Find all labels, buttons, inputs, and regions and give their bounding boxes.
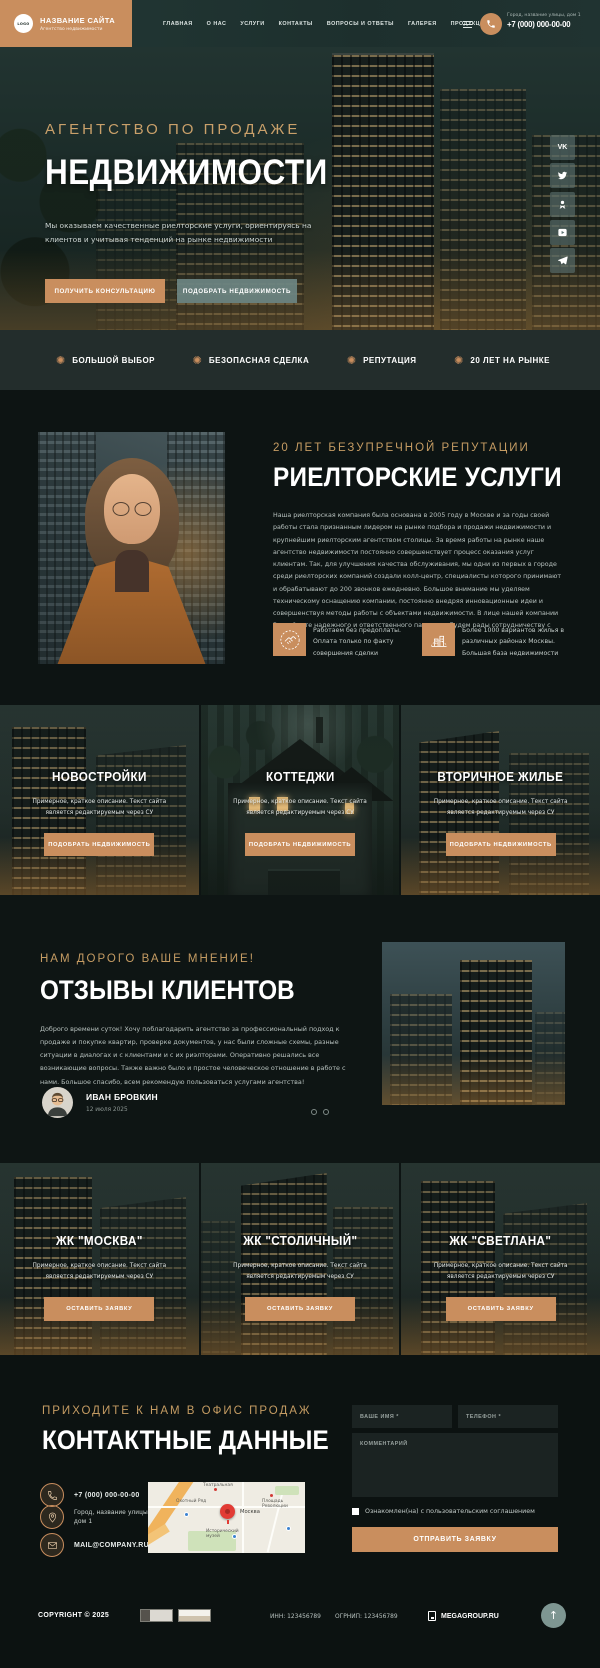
find-property-button[interactable]: ПОДОБРАТЬ НЕДВИЖИМОСТЬ <box>446 833 556 856</box>
find-property-button[interactable]: ПОДОБРАТЬ НЕДВИЖИМОСТЬ <box>44 833 154 856</box>
header: LOGO НАЗВАНИЕ САЙТА Агентство недвижимос… <box>0 0 600 47</box>
logo[interactable]: LOGO НАЗВАНИЕ САЙТА Агентство недвижимос… <box>0 0 132 47</box>
vk-icon[interactable]: VK <box>550 135 575 160</box>
about-photo <box>38 432 225 664</box>
map-label: Площадь Революции <box>262 1499 296 1510</box>
card-description: Примерное, краткое описание. Текст сайта… <box>426 797 575 819</box>
hero-description: Мы оказываем качественные риелторские ус… <box>45 219 320 248</box>
find-property-button[interactable]: ПОДОБРАТЬ НЕДВИЖИМОСТЬ <box>245 833 355 856</box>
sun-icon: ✺ <box>454 355 463 366</box>
category-card-secondary: ВТОРИЧНОЕ ЖИЛЬЕ Примерное, краткое описа… <box>401 705 600 895</box>
features-bar: ✺БОЛЬШОЙ ВЫБОР ✺БЕЗОПАСНАЯ СДЕЛКА ✺РЕПУТ… <box>0 330 600 390</box>
card-description: Примерное, краткое описание. Текст сайта… <box>25 797 174 819</box>
contact-address: Город, название улицы, дом 1 <box>74 1508 152 1527</box>
sun-icon: ✺ <box>193 355 202 366</box>
header-contact: Город, название улицы, дом 1 +7 (000) 00… <box>507 13 595 29</box>
request-button[interactable]: ОСТАВИТЬ ЗАЯВКУ <box>44 1297 154 1321</box>
card-description: Примерное, краткое описание. Текст сайта… <box>226 1261 375 1283</box>
request-button[interactable]: ОСТАВИТЬ ЗАЯВКУ <box>245 1297 355 1321</box>
feature-label: РЕПУТАЦИЯ <box>363 356 416 365</box>
map-road <box>242 1482 244 1553</box>
contact-email[interactable]: MAIL@COMPANY.RU <box>74 1542 149 1549</box>
metro-icon <box>184 1512 189 1517</box>
submit-button[interactable]: ОТПРАВИТЬ ЗАЯВКУ <box>352 1527 558 1552</box>
metro-icon <box>286 1526 291 1531</box>
avatar <box>42 1087 73 1118</box>
contact-title: КОНТАКТНЫЕ ДАННЫЕ <box>42 1425 329 1456</box>
nav-link-home[interactable]: ГЛАВНАЯ <box>163 21 193 27</box>
developer-link[interactable]: MEGAGROUP.RU <box>428 1611 499 1621</box>
map-label: Театральная <box>203 1483 233 1488</box>
megagroup-icon <box>428 1611 436 1621</box>
feature-label: 20 ЛЕТ НА РЫНКЕ <box>470 356 550 365</box>
complex-card-moskva: ЖК "МОСКВА" Примерное, краткое описание.… <box>0 1163 199 1355</box>
reviews-section: НАМ ДОРОГО ВАШЕ МНЕНИЕ! ОТЗЫВЫ КЛИЕНТОВ … <box>0 895 600 1163</box>
review-author: ИВАН БРОВКИН 12 июля 2025 <box>42 1087 158 1118</box>
contact-section: ПРИХОДИТЕ К НАМ В ОФИС ПРОДАЖ КОНТАКТНЫЕ… <box>0 1355 600 1600</box>
card-description: Примерное, краткое описание. Текст сайта… <box>426 1261 575 1283</box>
phone-field[interactable] <box>458 1405 558 1428</box>
sun-icon: ✺ <box>56 355 65 366</box>
handshake-icon <box>273 623 306 656</box>
about-title: РИЕЛТОРСКИЕ УСЛУГИ <box>273 462 562 493</box>
nav-link-gallery[interactable]: ГАЛЕРЕЯ <box>408 21 437 27</box>
map-label: Исторический музей <box>206 1529 240 1540</box>
header-address: Город, название улицы, дом 1 <box>507 13 595 18</box>
youtube-icon[interactable] <box>550 220 575 245</box>
logo-icon: LOGO <box>14 14 33 33</box>
card-title: ЖК "МОСКВА" <box>10 1233 189 1248</box>
author-name: ИВАН БРОВКИН <box>86 1087 158 1102</box>
feature-item: ✺БЕЗОПАСНАЯ СДЕЛКА <box>193 355 310 366</box>
photo-glow <box>382 1055 565 1105</box>
copyright: COPYRIGHT © 2025 <box>38 1612 109 1619</box>
metro-icon <box>270 1494 273 1497</box>
agreement-label: Ознакомлен(на) с пользовательским соглаш… <box>365 1508 535 1515</box>
benefit-text: Более 1000 вариантов жилья в различных р… <box>462 625 565 659</box>
about-subtitle: 20 ЛЕТ БЕЗУПРЕЧНОЙ РЕПУТАЦИИ <box>273 442 530 454</box>
contact-address-row: Город, название улицы, дом 1 <box>40 1505 152 1529</box>
location-icon <box>40 1505 64 1529</box>
footer: COPYRIGHT © 2025 ИНН: 123456789 ОГРНИП: … <box>0 1600 600 1668</box>
ogrnip: ОГРНИП: 123456789 <box>335 1614 398 1620</box>
carousel-dots <box>311 1109 329 1115</box>
card-title: ВТОРИЧНОЕ ЖИЛЬЕ <box>411 769 590 784</box>
portrait-glasses <box>112 502 151 516</box>
agreement-checkbox[interactable] <box>352 1508 359 1515</box>
hero-section: АГЕНТСТВО ПО ПРОДАЖЕ НЕДВИЖИМОСТИ Мы ока… <box>0 47 600 330</box>
site-tagline: Агентство недвижимости <box>40 27 115 32</box>
complex-card-svetlana: ЖК "СВЕТЛАНА" Примерное, краткое описани… <box>401 1163 600 1355</box>
contact-phone-row: +7 (000) 000-00-00 <box>40 1483 140 1507</box>
reviews-photo <box>382 942 565 1105</box>
consultation-button[interactable]: ПОЛУЧИТЬ КОНСУЛЬТАЦИЮ <box>45 279 165 303</box>
site-identity: НАЗВАНИЕ САЙТА Агентство недвижимости <box>40 16 115 32</box>
inn: ИНН: 123456789 <box>270 1614 321 1620</box>
about-section: 20 ЛЕТ БЕЗУПРЕЧНОЙ РЕПУТАЦИИ РИЕЛТОРСКИЕ… <box>0 390 600 705</box>
feature-item: ✺РЕПУТАЦИЯ <box>347 355 417 366</box>
portrait-turtleneck <box>115 550 149 592</box>
agreement-row: Ознакомлен(на) с пользовательским соглаш… <box>352 1508 535 1515</box>
page: LOGO НАЗВАНИЕ САЙТА Агентство недвижимос… <box>0 0 600 1668</box>
counter-badge[interactable] <box>140 1609 173 1622</box>
sun-icon: ✺ <box>347 355 356 366</box>
map-park <box>275 1486 299 1495</box>
feature-label: БЕЗОПАСНАЯ СДЕЛКА <box>209 356 309 365</box>
odnoklassniki-icon[interactable] <box>550 192 575 217</box>
name-field[interactable] <box>352 1405 452 1428</box>
nav-link-contacts[interactable]: КОНТАКТЫ <box>279 21 313 27</box>
nav-link-services[interactable]: УСЛУГИ <box>240 21 264 27</box>
menu-icon[interactable] <box>463 21 472 28</box>
twitter-icon[interactable] <box>550 163 575 188</box>
comment-field[interactable] <box>352 1433 558 1497</box>
hero-subtitle: АГЕНТСТВО ПО ПРОДАЖЕ <box>45 121 300 138</box>
counter-badge[interactable] <box>178 1609 211 1622</box>
map[interactable]: Театральная Охотный Ряд Площадь Революци… <box>148 1482 305 1553</box>
nav-link-faq[interactable]: ВОПРОСЫ И ОТВЕТЫ <box>327 21 394 27</box>
buildings-icon <box>422 623 455 656</box>
contact-phone[interactable]: +7 (000) 000-00-00 <box>74 1492 140 1499</box>
header-phone[interactable]: +7 (000) 000-00-00 <box>507 20 591 29</box>
hero-title: НЕДВИЖИМОСТИ <box>45 153 328 193</box>
author-meta: ИВАН БРОВКИН 12 июля 2025 <box>86 1087 158 1113</box>
map-pin <box>227 1520 229 1524</box>
request-button[interactable]: ОСТАВИТЬ ЗАЯВКУ <box>446 1297 556 1321</box>
card-title: ЖК "СТОЛИЧНЫЙ" <box>211 1233 390 1248</box>
feature-item: ✺БОЛЬШОЙ ВЫБОР <box>56 355 155 366</box>
feature-item: ✺20 ЛЕТ НА РЫНКЕ <box>454 355 550 366</box>
complex-card-stolichny: ЖК "СТОЛИЧНЫЙ" Примерное, краткое описан… <box>201 1163 400 1355</box>
category-cards: НОВОСТРОЙКИ Примерное, краткое описание.… <box>0 705 600 895</box>
card-title: КОТТЕДЖИ <box>211 769 390 784</box>
carousel-dot[interactable] <box>323 1109 329 1115</box>
card-title: ЖК "СВЕТЛАНА" <box>411 1233 590 1248</box>
phone-icon[interactable] <box>480 13 502 35</box>
telegram-icon[interactable] <box>550 248 575 273</box>
map-label: Охотный Ряд <box>176 1499 206 1504</box>
main-nav: ГЛАВНАЯ О НАС УСЛУГИ КОНТАКТЫ ВОПРОСЫ И … <box>163 0 489 47</box>
contact-email-row: MAIL@COMPANY.RU <box>40 1533 149 1557</box>
contact-subtitle: ПРИХОДИТЕ К НАМ В ОФИС ПРОДАЖ <box>42 1405 312 1417</box>
nav-link-about[interactable]: О НАС <box>207 21 227 27</box>
scroll-top-button[interactable]: ↑ <box>541 1603 566 1628</box>
review-date: 12 июля 2025 <box>86 1107 158 1113</box>
find-property-button[interactable]: ПОДОБРАТЬ НЕДВИЖИМОСТЬ <box>177 279 297 303</box>
metro-icon <box>214 1488 217 1491</box>
developer-name: MEGAGROUP.RU <box>441 1613 499 1620</box>
category-card-new-buildings: НОВОСТРОЙКИ Примерное, краткое описание.… <box>0 705 199 895</box>
complex-cards: ЖК "МОСКВА" Примерное, краткое описание.… <box>0 1163 600 1355</box>
category-card-cottages: КОТТЕДЖИ Примерное, краткое описание. Те… <box>201 705 400 895</box>
card-description: Примерное, краткое описание. Текст сайта… <box>226 797 375 819</box>
reviews-title: ОТЗЫВЫ КЛИЕНТОВ <box>40 975 295 1006</box>
feature-label: БОЛЬШОЙ ВЫБОР <box>72 356 155 365</box>
carousel-dot[interactable] <box>311 1109 317 1115</box>
reviews-subtitle: НАМ ДОРОГО ВАШЕ МНЕНИЕ! <box>40 953 255 965</box>
review-text: Доброго времени суток! Хочу поблагодарит… <box>40 1023 350 1089</box>
phone-icon <box>40 1483 64 1507</box>
mail-icon <box>40 1533 64 1557</box>
card-description: Примерное, краткое описание. Текст сайта… <box>25 1261 174 1283</box>
card-title: НОВОСТРОЙКИ <box>10 769 189 784</box>
site-name: НАЗВАНИЕ САЙТА <box>40 16 115 25</box>
map-pin <box>220 1504 235 1519</box>
map-city-label: Москва <box>240 1509 260 1515</box>
social-bar: VK <box>550 135 575 273</box>
benefit-text: Работаем без предоплаты. Оплата только п… <box>313 625 405 659</box>
